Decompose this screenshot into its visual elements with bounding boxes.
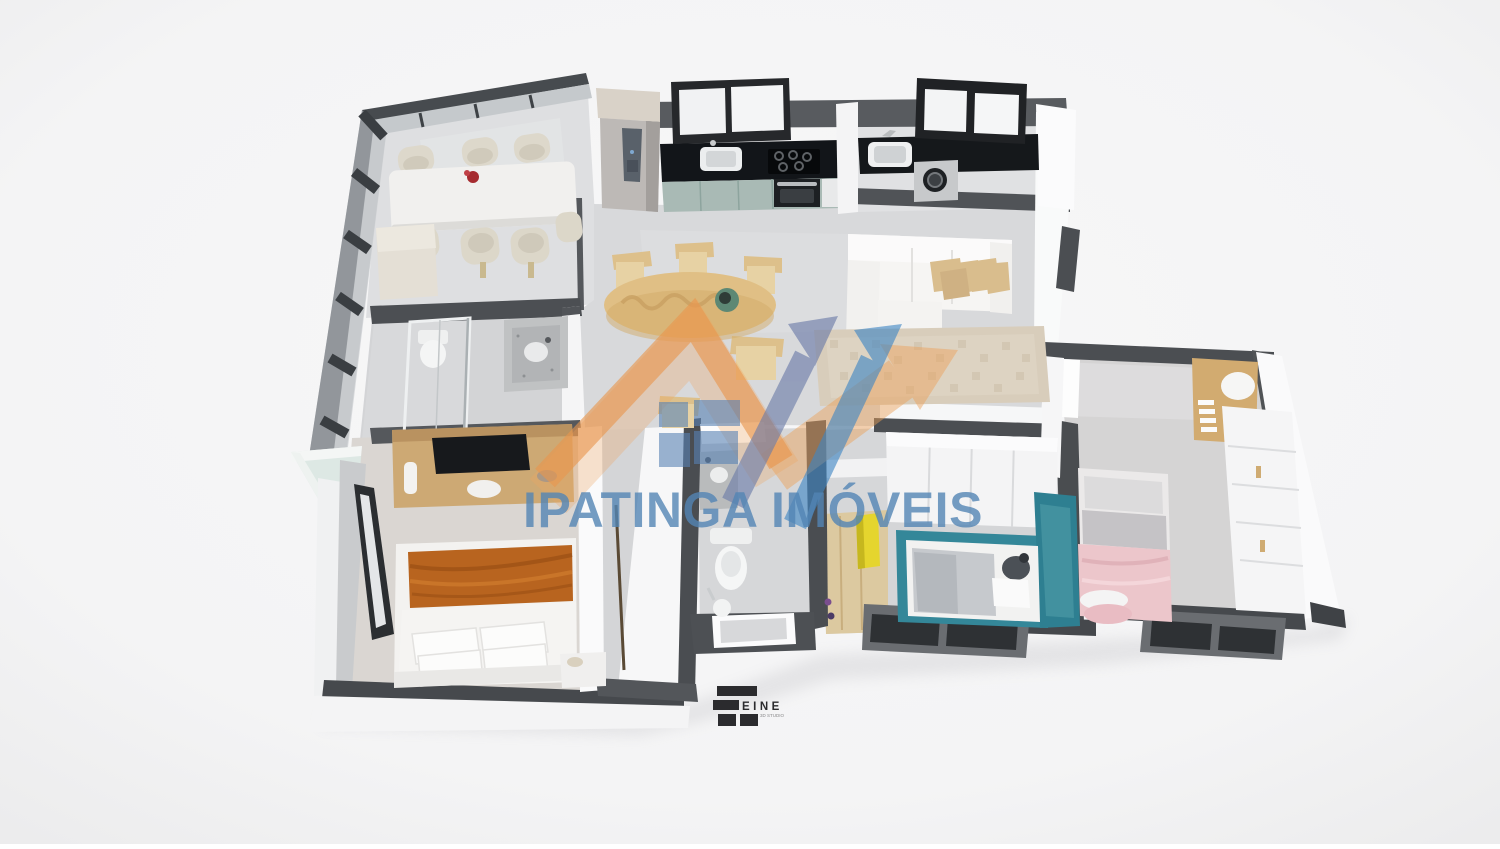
svg-text:3D STUDIO: 3D STUDIO [760, 713, 785, 718]
svg-text:IPATINGA IMÓVEIS: IPATINGA IMÓVEIS [523, 482, 983, 538]
svg-text:EINE: EINE [742, 701, 783, 713]
